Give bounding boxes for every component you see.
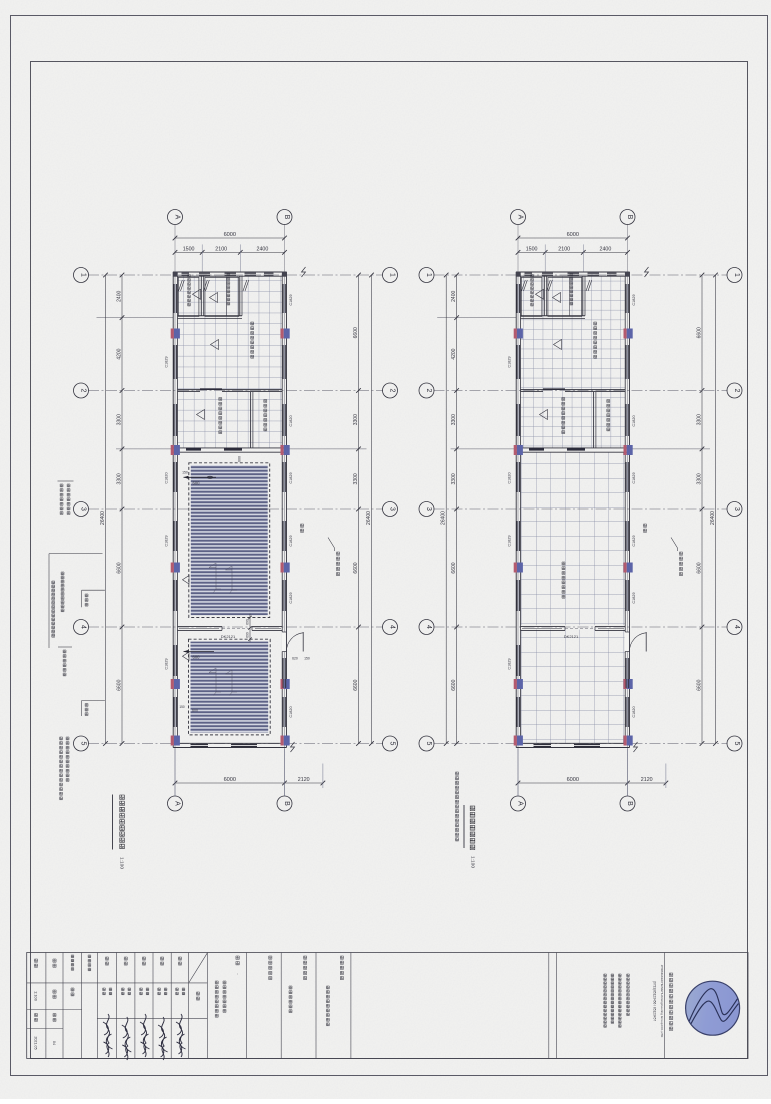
svg-text:150: 150 <box>182 471 188 475</box>
svg-text:26400: 26400 <box>366 511 372 525</box>
svg-text:1: 1 <box>388 273 395 277</box>
svg-text:4: 4 <box>388 625 395 629</box>
svg-text:600: 600 <box>246 632 250 638</box>
svg-text:1500: 1500 <box>183 247 195 253</box>
svg-text:C1829: C1829 <box>289 294 293 305</box>
svg-text:B: B <box>626 215 633 220</box>
svg-text:600: 600 <box>193 481 201 486</box>
svg-text:2: 2 <box>388 389 395 393</box>
svg-text:6000: 6000 <box>224 232 236 238</box>
svg-text:5: 5 <box>388 742 395 746</box>
svg-text:2: 2 <box>425 389 432 393</box>
svg-text:5: 5 <box>425 742 432 746</box>
svg-text:C1829: C1829 <box>165 356 169 367</box>
svg-text:150: 150 <box>304 657 310 661</box>
svg-text:6600: 6600 <box>697 562 703 573</box>
svg-text:620: 620 <box>292 657 298 661</box>
svg-text:1: 1 <box>425 273 432 277</box>
svg-text:6600: 6600 <box>451 679 457 690</box>
svg-text:2400: 2400 <box>117 291 123 302</box>
svg-text:3300: 3300 <box>353 473 359 484</box>
svg-text:1: 1 <box>79 273 86 277</box>
svg-text:2: 2 <box>733 389 740 393</box>
svg-text::: : <box>237 971 238 976</box>
svg-text:6000: 6000 <box>224 777 236 783</box>
svg-text:26400: 26400 <box>441 511 447 525</box>
svg-text:C1820: C1820 <box>165 472 169 483</box>
svg-text:6600: 6600 <box>117 679 123 690</box>
svg-text:C1829: C1829 <box>289 592 293 603</box>
svg-text:C1820: C1820 <box>508 472 512 483</box>
svg-text:2120: 2120 <box>298 777 310 783</box>
svg-text:C1829: C1829 <box>632 535 636 546</box>
svg-text:150: 150 <box>179 705 185 709</box>
svg-text:1:100: 1:100 <box>470 856 476 868</box>
svg-text:6000: 6000 <box>567 232 579 238</box>
svg-text:C1829: C1829 <box>632 472 636 483</box>
svg-text:C1820: C1820 <box>632 706 636 717</box>
svg-text:C1820: C1820 <box>289 415 293 426</box>
svg-text:3: 3 <box>388 507 395 511</box>
svg-text:4200: 4200 <box>117 348 123 359</box>
svg-text:B: B <box>283 215 290 220</box>
svg-text:600: 600 <box>193 655 201 660</box>
svg-text:C1829: C1829 <box>632 592 636 603</box>
svg-text:2: 2 <box>79 389 86 393</box>
svg-text:3300: 3300 <box>117 414 123 425</box>
svg-text:A: A <box>173 801 180 806</box>
svg-text:3300: 3300 <box>697 414 703 425</box>
svg-text:B: B <box>283 801 290 806</box>
svg-text:4200: 4200 <box>451 348 457 359</box>
svg-text:2100: 2100 <box>215 247 227 253</box>
svg-text:C1829: C1829 <box>508 535 512 546</box>
svg-text:A: A <box>173 215 180 220</box>
svg-text:C1829: C1829 <box>289 472 293 483</box>
svg-text:26400: 26400 <box>100 511 106 525</box>
svg-text:2100: 2100 <box>558 247 570 253</box>
svg-text:C1829: C1829 <box>165 658 169 669</box>
svg-text:600: 600 <box>238 456 242 462</box>
svg-text:A: A <box>516 801 523 806</box>
svg-text:1:100: 1:100 <box>119 857 125 869</box>
svg-text:5: 5 <box>79 742 86 746</box>
svg-text:6600: 6600 <box>353 679 359 690</box>
svg-text:DK2121: DK2121 <box>564 634 579 639</box>
svg-text:B: B <box>626 801 633 806</box>
svg-text:3300: 3300 <box>697 473 703 484</box>
svg-text:26400: 26400 <box>710 511 716 525</box>
svg-text:3: 3 <box>733 507 740 511</box>
svg-text:600: 600 <box>192 709 198 713</box>
svg-text:6600: 6600 <box>353 327 359 338</box>
svg-text:6600: 6600 <box>353 562 359 573</box>
svg-text:600: 600 <box>246 619 250 625</box>
svg-text:4: 4 <box>733 625 740 629</box>
svg-text:3300: 3300 <box>451 473 457 484</box>
svg-text:C1829: C1829 <box>289 535 293 546</box>
svg-text:1: 1 <box>733 273 740 277</box>
svg-text:6000: 6000 <box>567 777 579 783</box>
svg-text:C1829: C1829 <box>508 658 512 669</box>
svg-text:6600: 6600 <box>697 679 703 690</box>
svg-text:DK2121: DK2121 <box>221 634 236 639</box>
svg-text:2400: 2400 <box>451 291 457 302</box>
svg-text:1500: 1500 <box>526 247 538 253</box>
svg-text:C1829: C1829 <box>632 294 636 305</box>
svg-text:C1820: C1820 <box>632 415 636 426</box>
svg-text:4: 4 <box>425 625 432 629</box>
svg-text:3300: 3300 <box>353 414 359 425</box>
svg-text:C1829: C1829 <box>508 356 512 367</box>
svg-text:ZHONGKECHENGHUA Engineering Gr: ZHONGKECHENGHUA Engineering Group CO.,LT… <box>660 965 664 1038</box>
svg-text:4: 4 <box>79 625 86 629</box>
svg-text:C1829: C1829 <box>165 535 169 546</box>
svg-text:1:100: 1:100 <box>34 991 39 1002</box>
svg-text:2021.05: 2021.05 <box>34 1036 38 1049</box>
svg-text:3300: 3300 <box>117 473 123 484</box>
svg-text:6600: 6600 <box>117 562 123 573</box>
svg-text:3300: 3300 <box>451 414 457 425</box>
svg-text:5: 5 <box>733 742 740 746</box>
svg-text:C1820: C1820 <box>289 706 293 717</box>
svg-text:(0731)85123456 / 85123457: (0731)85123456 / 85123457 <box>653 981 657 1021</box>
svg-text:2120: 2120 <box>641 777 653 783</box>
svg-text:3: 3 <box>425 507 432 511</box>
svg-text:A: A <box>516 215 523 220</box>
svg-text:3: 3 <box>79 507 86 511</box>
svg-text:6600: 6600 <box>451 562 457 573</box>
svg-text:2400: 2400 <box>257 247 269 253</box>
svg-text:2400: 2400 <box>600 247 612 253</box>
svg-text:6600: 6600 <box>697 327 703 338</box>
